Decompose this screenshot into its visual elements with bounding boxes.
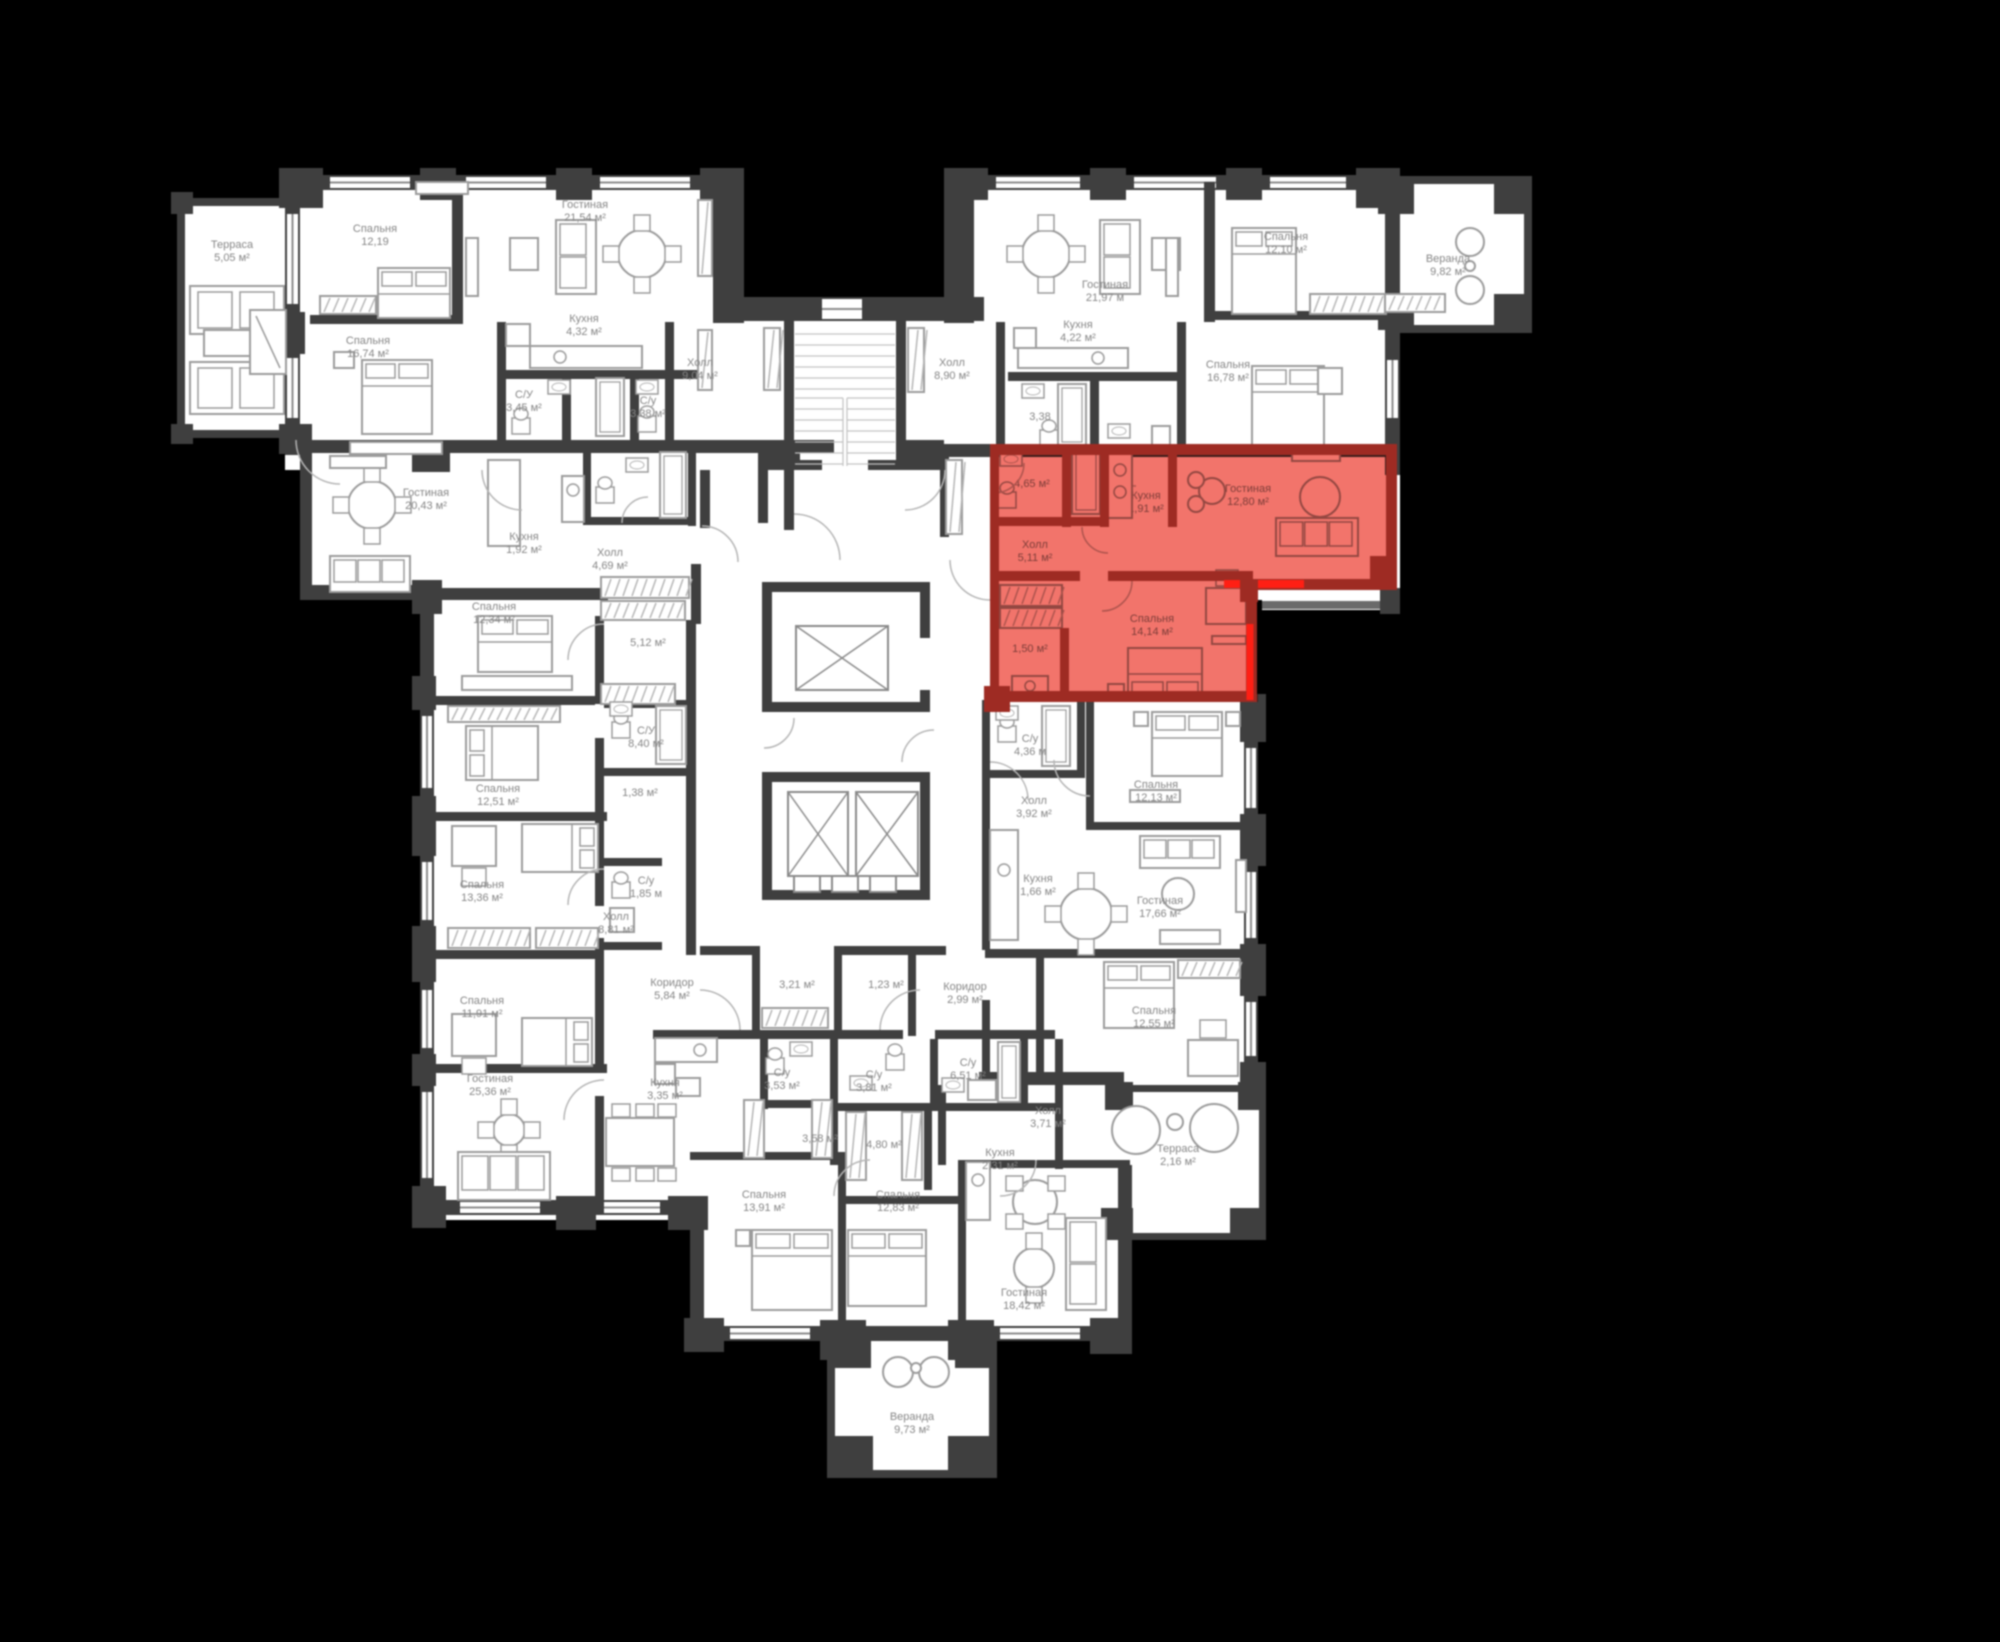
- svg-text:Спальня12,83 м²: Спальня12,83 м²: [876, 1189, 920, 1214]
- svg-text:Спальня13,36 м²: Спальня13,36 м²: [460, 879, 504, 904]
- svg-text:Холл8,81 м²: Холл8,81 м²: [598, 911, 634, 936]
- svg-text:Веранда9,73 м²: Веранда9,73 м²: [890, 1411, 935, 1436]
- svg-text:Кухня4,22 м²: Кухня4,22 м²: [1060, 319, 1096, 344]
- svg-text:Спальня12,34 м²: Спальня12,34 м²: [472, 601, 516, 626]
- svg-text:Спальня12,51 м²: Спальня12,51 м²: [476, 783, 520, 808]
- svg-text:Спальня16,74 м²: Спальня16,74 м²: [346, 335, 390, 360]
- svg-text:Холл8,90 м²: Холл8,90 м²: [934, 357, 970, 382]
- svg-text:Спальня12,55 м²: Спальня12,55 м²: [1132, 1005, 1176, 1030]
- svg-text:Веранда9,82 м²: Веранда9,82 м²: [1426, 253, 1471, 278]
- svg-text:4,80 м²: 4,80 м²: [866, 1139, 902, 1151]
- svg-text:Терраса5,05 м²: Терраса5,05 м²: [211, 239, 254, 264]
- svg-text:Кухня3,35 м²: Кухня3,35 м²: [647, 1077, 683, 1102]
- svg-text:Спальня12,10 м²: Спальня12,10 м²: [1264, 231, 1308, 256]
- svg-text:Кухня2,31 м²: Кухня2,31 м²: [982, 1147, 1018, 1172]
- svg-text:Спальня16,78 м²: Спальня16,78 м²: [1206, 359, 1250, 384]
- svg-text:1,38 м²: 1,38 м²: [622, 787, 658, 799]
- svg-text:Гостиная17,66 м²: Гостиная17,66 м²: [1137, 895, 1183, 920]
- svg-text:Спальня12,13 м²: Спальня12,13 м²: [1134, 779, 1178, 804]
- svg-text:Кухня1,66 м²: Кухня1,66 м²: [1020, 873, 1056, 898]
- svg-text:Коридор5,84 м²: Коридор5,84 м²: [650, 977, 693, 1002]
- svg-text:3,38: 3,38: [1029, 411, 1050, 423]
- svg-text:Гостиная18,42 м²: Гостиная18,42 м²: [1001, 1287, 1047, 1312]
- svg-text:1,23 м²: 1,23 м²: [868, 979, 904, 991]
- svg-text:Спальня11,91 м²: Спальня11,91 м²: [460, 995, 504, 1020]
- svg-text:Холл3,92 м²: Холл3,92 м²: [1016, 795, 1052, 820]
- svg-text:Гостиная21,54 м²: Гостиная21,54 м²: [562, 199, 608, 224]
- svg-text:Гостиная25,36 м²: Гостиная25,36 м²: [467, 1073, 513, 1098]
- svg-text:Терраса2,16 м²: Терраса2,16 м²: [1157, 1143, 1200, 1168]
- svg-text:Гостиная21,97 м: Гостиная21,97 м: [1082, 279, 1128, 304]
- svg-text:Спальня13,91 м²: Спальня13,91 м²: [742, 1189, 786, 1214]
- svg-text:Кухня4,32 м²: Кухня4,32 м²: [566, 313, 602, 338]
- svg-text:Гостиная20,43 м²: Гостиная20,43 м²: [403, 487, 449, 512]
- svg-text:Холл3,71 м²: Холл3,71 м²: [1030, 1105, 1066, 1130]
- svg-text:5,12 м²: 5,12 м²: [630, 637, 666, 649]
- svg-text:Кухня1,92 м²: Кухня1,92 м²: [506, 531, 542, 556]
- svg-text:3,58 м²: 3,58 м²: [802, 1133, 838, 1145]
- svg-text:Коридор2,99 м²: Коридор2,99 м²: [943, 981, 986, 1006]
- svg-text:Холл9,04 м²: Холл9,04 м²: [682, 357, 718, 382]
- svg-text:3,21 м²: 3,21 м²: [779, 979, 815, 991]
- svg-text:Холл4,69 м²: Холл4,69 м²: [592, 547, 628, 572]
